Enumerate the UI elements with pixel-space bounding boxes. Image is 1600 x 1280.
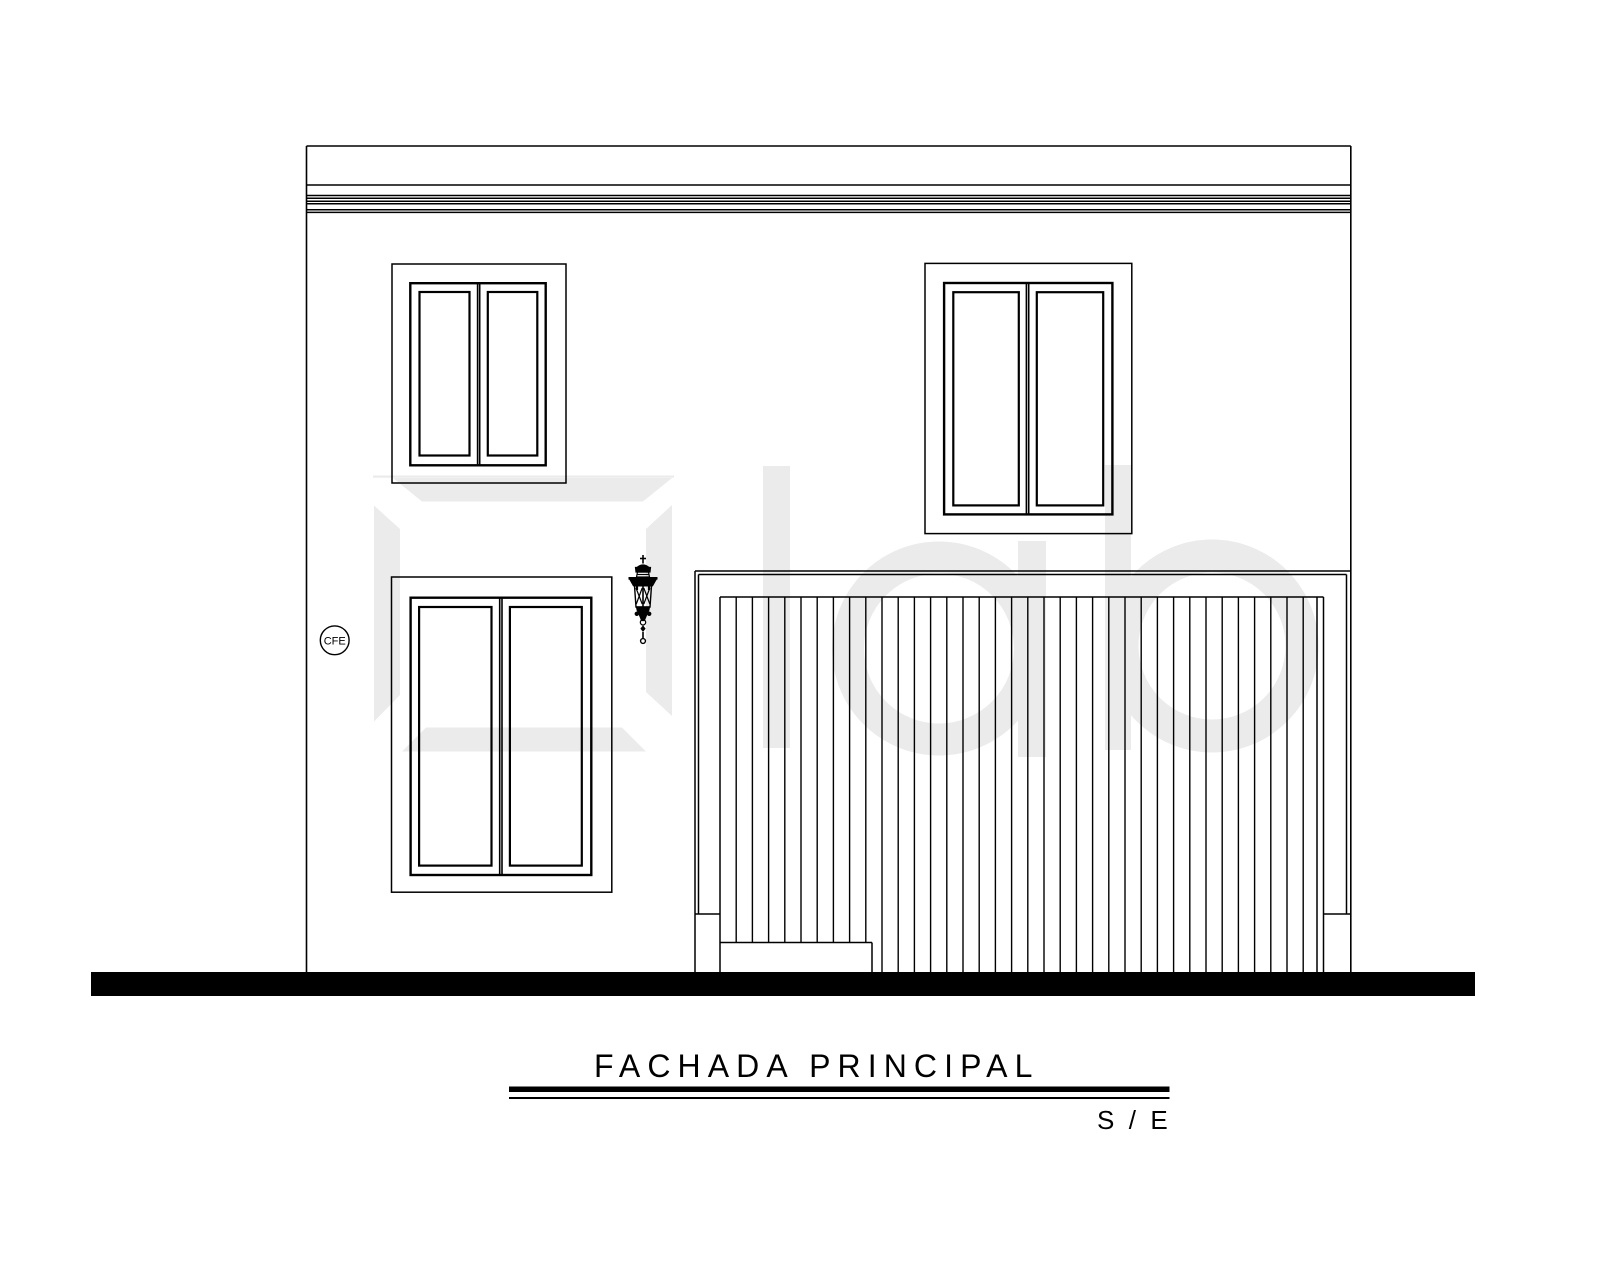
svg-text:FACHADA PRINCIPAL: FACHADA PRINCIPAL <box>594 1048 1040 1084</box>
svg-text:CFE: CFE <box>324 636 346 648</box>
svg-text:S / E: S / E <box>1097 1105 1171 1135</box>
